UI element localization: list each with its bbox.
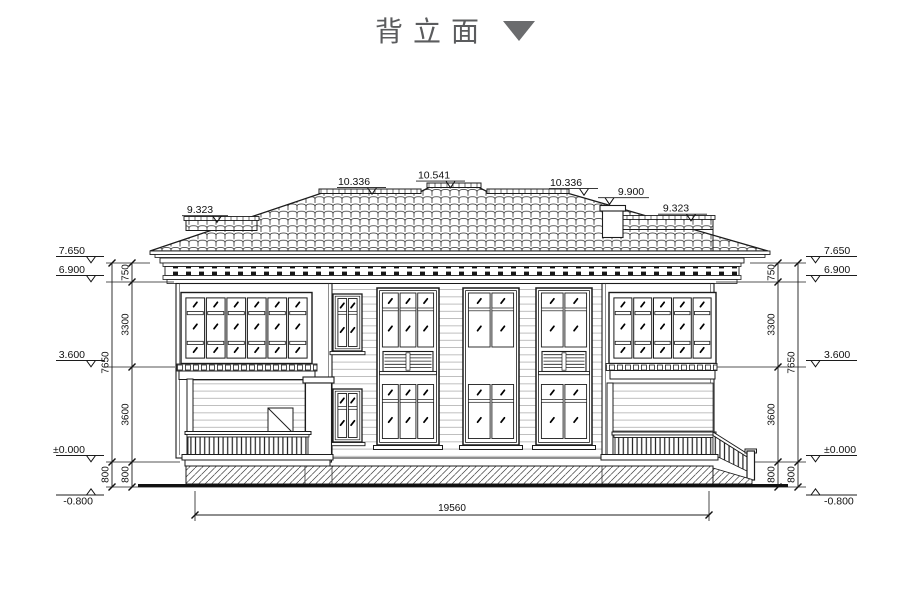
porch-railing — [185, 432, 311, 435]
plinth — [186, 466, 713, 484]
label-10336-right: 10.336 — [550, 177, 582, 189]
sash-rail — [290, 312, 306, 315]
dim-seg-750-right: 750 — [767, 264, 778, 281]
porch-pier — [306, 383, 332, 462]
sash-rail — [468, 308, 490, 311]
window-sill — [374, 446, 443, 450]
sash-rail — [249, 312, 265, 315]
sash-rail — [635, 312, 650, 315]
sash-rail — [655, 341, 670, 344]
balusters — [188, 437, 308, 456]
louver-divider — [406, 353, 410, 370]
sash-rail — [348, 312, 357, 315]
dim-seg-3600-right: 3600 — [767, 403, 778, 426]
level-marker-icon — [811, 456, 820, 462]
ridge-cap-main — [427, 183, 481, 188]
left-wing-ridge-cap — [184, 217, 259, 221]
dentil-band — [165, 267, 739, 276]
sash-rail — [468, 400, 490, 403]
level-marker-icon — [87, 489, 96, 495]
dim-total-800-left: 800 — [101, 466, 112, 483]
louver-sill — [539, 372, 590, 375]
ridge-cap-right — [487, 189, 569, 194]
sash-rail — [228, 312, 244, 315]
sash-rail — [635, 341, 650, 344]
sash-rail — [187, 341, 203, 344]
window-sill — [330, 352, 365, 355]
dim-total-width: 19560 — [438, 503, 466, 514]
sash-rail — [565, 400, 587, 403]
dim-seg-3600-left: 3600 — [121, 403, 132, 426]
sash-rail — [400, 308, 416, 311]
sash-rail — [675, 341, 690, 344]
label-10541: 10.541 — [418, 170, 450, 182]
porch-slab — [182, 455, 333, 461]
sill-board-left — [179, 371, 315, 380]
sash-rail — [228, 341, 244, 344]
roof — [150, 183, 768, 251]
right-jamb — [607, 383, 613, 458]
sash-rail — [615, 341, 630, 344]
pier-cap — [303, 377, 334, 383]
sash-rail — [338, 407, 347, 410]
window-sill — [533, 446, 596, 450]
sash-rail — [541, 308, 563, 311]
sash-rail — [348, 407, 357, 410]
sash-rail — [694, 312, 709, 315]
dim-seg-3300-right: 3300 — [767, 313, 778, 336]
sash-rail — [675, 312, 690, 315]
sash-rail — [290, 341, 306, 344]
level-marker-icon — [580, 189, 589, 196]
sash-rail — [208, 312, 224, 315]
sash-rail — [615, 312, 630, 315]
louver-sill — [380, 372, 437, 375]
sash-rail — [492, 400, 514, 403]
sash-rail — [655, 312, 670, 315]
right-wing-siding — [613, 383, 713, 431]
label-9323-left: 9.323 — [187, 204, 213, 216]
cornice — [150, 251, 770, 284]
sash-rail — [269, 312, 285, 315]
sash-rail — [187, 312, 203, 315]
dim-total-7650-left: 7650 — [101, 351, 112, 374]
level-m0800-left: -0.800 — [63, 496, 93, 508]
level-m0800-right: -0.800 — [824, 496, 854, 508]
sash-rail — [492, 308, 514, 311]
level-marker-icon — [87, 276, 96, 282]
window-sill — [330, 443, 365, 446]
sash-rail — [694, 341, 709, 344]
level-marker-icon — [87, 257, 96, 263]
dim-seg-800-right: 800 — [767, 466, 778, 483]
sash-rail — [269, 341, 285, 344]
sash-rail — [418, 308, 434, 311]
chimney — [603, 211, 624, 238]
balusters — [615, 438, 713, 457]
sash-rail — [208, 341, 224, 344]
level-marker-icon — [87, 456, 96, 462]
level-3600-right: 3.600 — [824, 349, 850, 361]
level-6900-right: 6.900 — [824, 264, 850, 276]
dim-total-800-right: 800 — [787, 466, 798, 483]
dim-seg-750-left: 750 — [121, 264, 132, 281]
level-7650-right: 7.650 — [824, 245, 850, 257]
sash-rail — [541, 400, 563, 403]
sash-rail — [565, 308, 587, 311]
sash-rail — [382, 308, 398, 311]
sash-rail — [400, 400, 416, 403]
level-0000-left: ±0.000 — [53, 444, 85, 456]
level-marker-icon — [811, 361, 820, 367]
sash-rail — [338, 312, 347, 315]
elevation-drawing: 750 3300 3600 800 7650 800 750 3300 3600… — [0, 0, 910, 616]
label-9323-right: 9.323 — [663, 203, 689, 215]
window-sill — [460, 446, 523, 450]
chimney-cap — [600, 206, 626, 212]
level-7650-left: 7.650 — [59, 245, 85, 257]
level-marker-icon — [605, 198, 614, 205]
level-marker-icon — [811, 276, 820, 282]
level-6900-left: 6.900 — [59, 264, 85, 276]
ground-line — [138, 484, 788, 487]
label-10336-left: 10.336 — [338, 176, 370, 188]
sash-rail — [382, 400, 398, 403]
right-railing — [612, 432, 716, 435]
label-9900: 9.900 — [618, 186, 644, 198]
level-marker-icon — [811, 257, 820, 263]
right-slab — [601, 455, 718, 461]
sill-dentil-left — [177, 364, 317, 371]
dim-seg-800-left: 800 — [121, 466, 132, 483]
newel-post — [747, 451, 755, 480]
louver-divider — [562, 353, 566, 370]
sash-rail — [418, 400, 434, 403]
dim-total-7650-right: 7650 — [787, 351, 798, 374]
sill-dentil-right — [606, 364, 717, 371]
right-wing-ridge-cap — [621, 216, 715, 220]
elevation-sheet: 背立面 — [0, 0, 910, 616]
level-3600-left: 3.600 — [59, 349, 85, 361]
level-marker-icon — [811, 489, 820, 495]
dim-seg-3300-left: 3300 — [121, 313, 132, 336]
sill-board-right — [610, 371, 715, 380]
level-0000-right: ±0.000 — [824, 444, 856, 456]
level-marker-icon — [87, 361, 96, 367]
porch-base — [185, 460, 330, 466]
sash-rail — [249, 341, 265, 344]
